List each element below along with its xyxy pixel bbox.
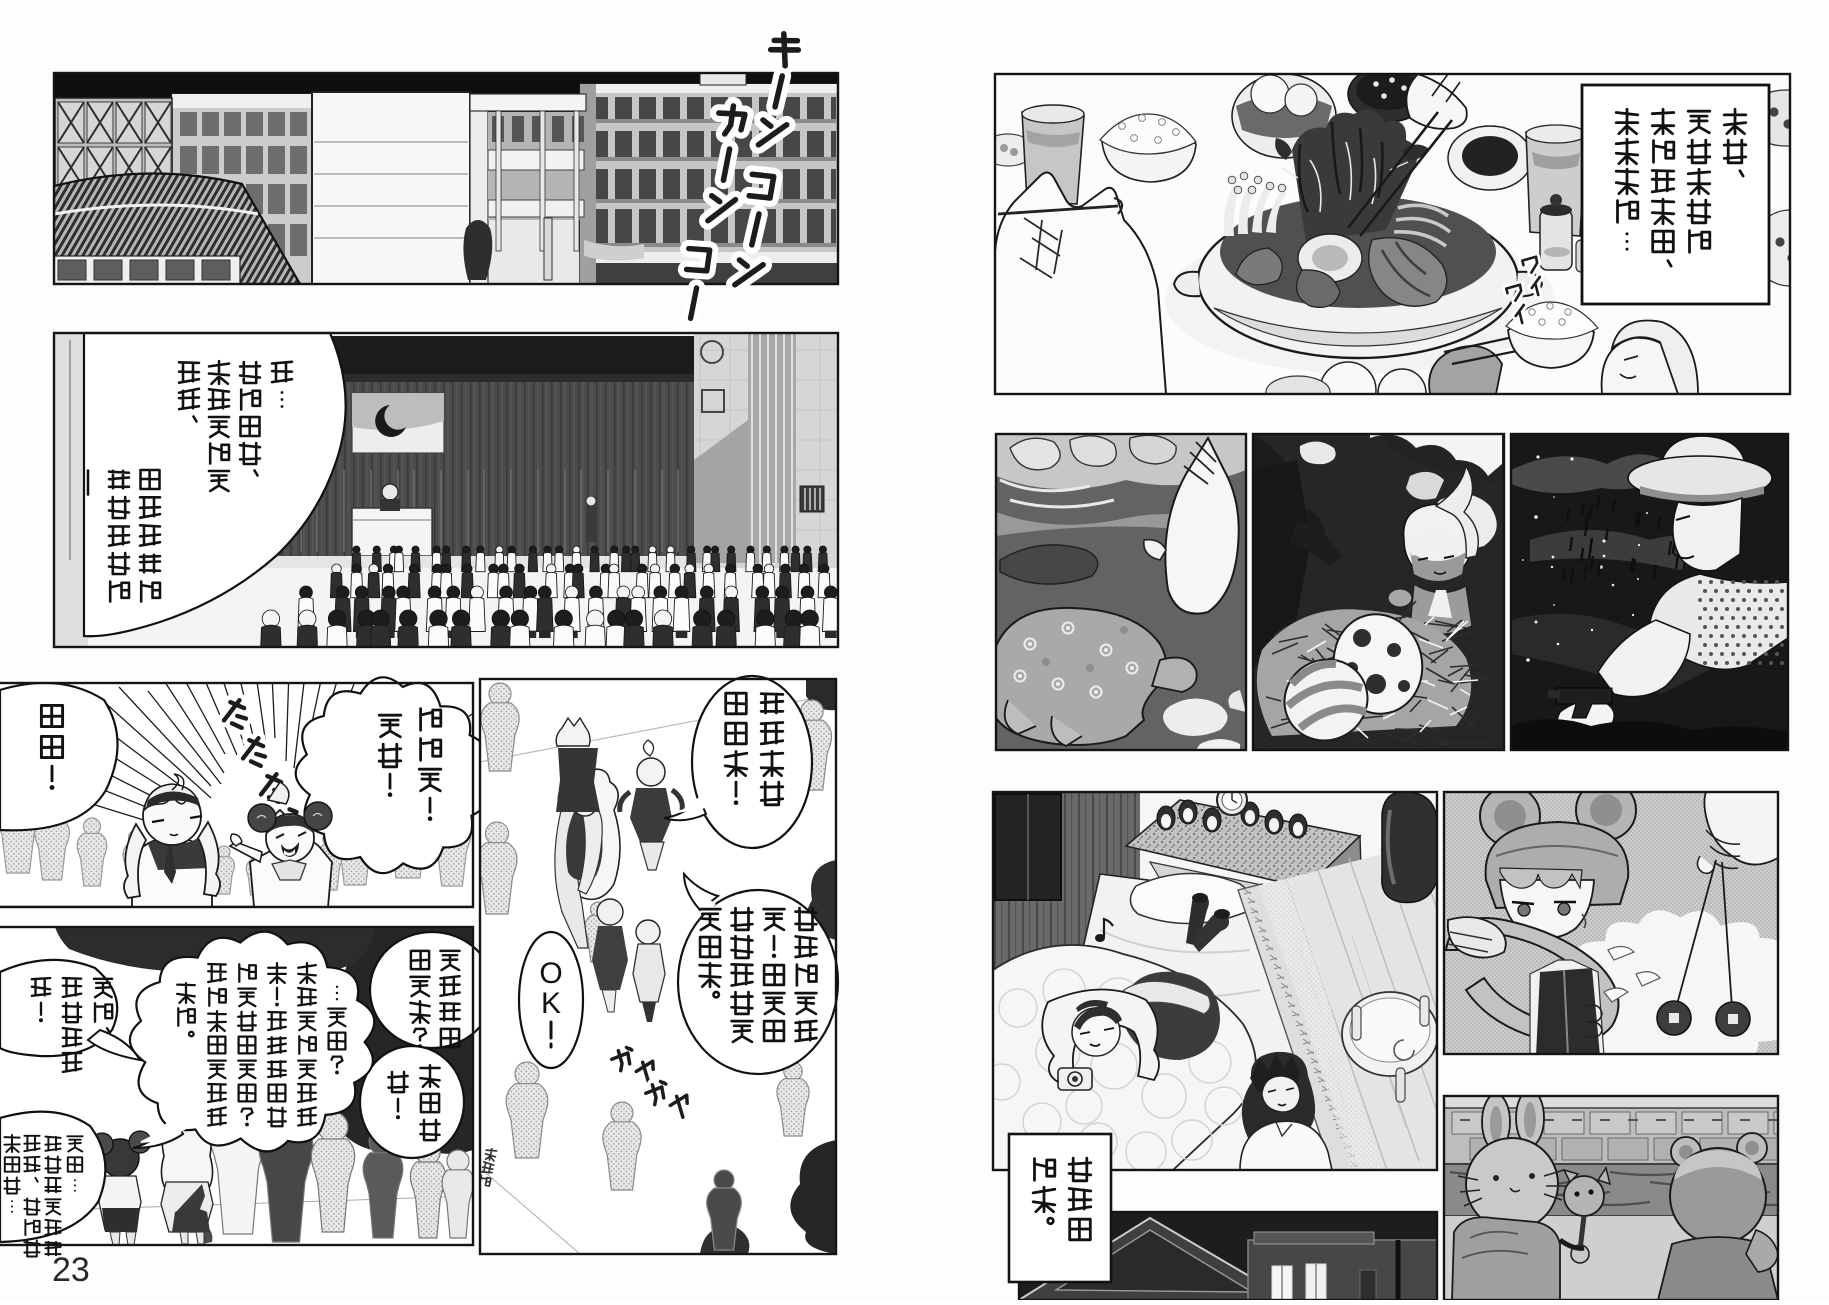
- svg-text:O: O: [539, 957, 562, 990]
- svg-text:23: 23: [52, 1251, 90, 1289]
- svg-text:K: K: [541, 987, 561, 1020]
